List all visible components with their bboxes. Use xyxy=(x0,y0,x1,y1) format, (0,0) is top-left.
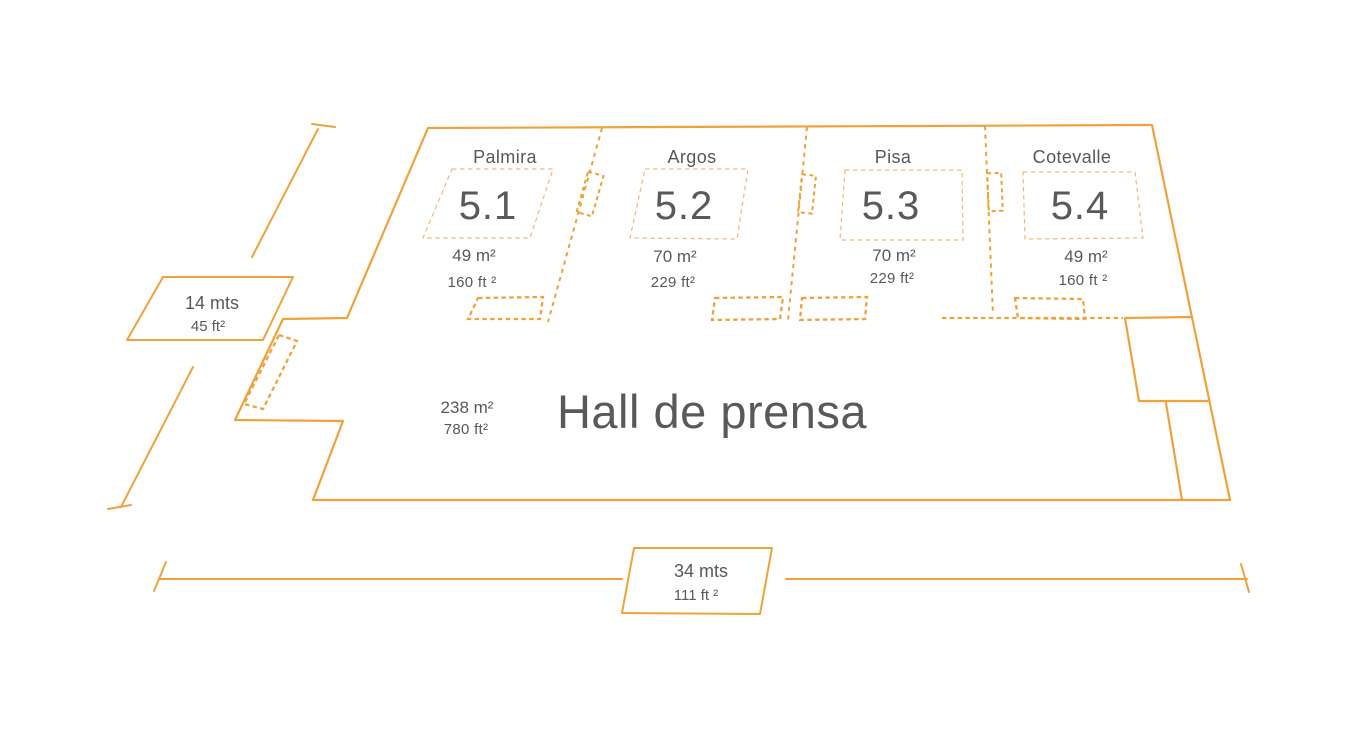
left-dimension: 14 mts 45 ft² xyxy=(108,124,335,509)
divider-wall-2 xyxy=(788,127,807,320)
bottom-dimension: 34 mts 111 ft ² xyxy=(154,548,1249,614)
divider-wall-1 xyxy=(548,128,602,322)
room-door xyxy=(468,297,543,319)
room-argos: Argos 5.2 70 m² 229 ft² xyxy=(630,147,783,320)
room-area-m2: 49 m² xyxy=(452,246,496,265)
right-lower-closet-left-wall xyxy=(1166,403,1182,500)
divider-3-doorway xyxy=(987,173,1003,212)
room-pisa: Pisa 5.3 70 m² 229 ft² xyxy=(800,147,963,320)
bottom-dimension-label-box xyxy=(622,548,772,614)
room-palmira: Palmira 5.1 49 m² 160 ft ² xyxy=(423,147,553,319)
hall-area-ft2: 780 ft² xyxy=(444,421,489,438)
building-outline xyxy=(235,125,1230,500)
room-number: 5.1 xyxy=(459,184,518,228)
hall-area-m2: 238 m² xyxy=(441,398,494,417)
bottom-dimension-metric: 34 mts xyxy=(674,561,728,581)
divider-1-doorway xyxy=(577,172,604,217)
room-number: 5.2 xyxy=(655,184,714,228)
room-number: 5.3 xyxy=(862,184,921,228)
floor-plan-svg: Palmira 5.1 49 m² 160 ft ² Argos 5.2 70 … xyxy=(0,0,1347,738)
outer-wall xyxy=(235,125,1230,500)
left-dimension-bottom-tick xyxy=(108,505,131,509)
hall-title: Hall de prensa xyxy=(557,385,867,438)
left-dimension-lower-line xyxy=(121,367,193,507)
room-door xyxy=(800,297,867,320)
room-area-ft2: 229 ft² xyxy=(651,274,696,291)
left-dimension-imperial: 45 ft² xyxy=(191,318,225,335)
bottom-dimension-imperial: 111 ft ² xyxy=(674,587,718,604)
room-area-ft2: 229 ft² xyxy=(870,270,915,287)
room-door xyxy=(712,297,783,320)
room-door xyxy=(1015,298,1085,319)
left-dimension-top-tick xyxy=(312,124,335,127)
room-area-ft2: 160 ft ² xyxy=(447,274,496,291)
divider-2-doorway xyxy=(798,174,816,213)
right-closet-top xyxy=(1125,317,1191,318)
floor-plan: Palmira 5.1 49 m² 160 ft ² Argos 5.2 70 … xyxy=(0,0,1347,738)
divider-wall-3 xyxy=(985,126,993,315)
hall: 238 m² 780 ft² Hall de prensa xyxy=(441,385,868,438)
room-name: Pisa xyxy=(875,147,912,167)
room-area-m2: 49 m² xyxy=(1064,247,1108,266)
room-area-ft2: 160 ft ² xyxy=(1058,272,1107,289)
right-closet-left-wall xyxy=(1125,318,1139,401)
left-dimension-upper-line xyxy=(252,129,318,257)
room-cotevalle: Cotevalle 5.4 49 m² 160 ft ² xyxy=(1015,147,1143,319)
room-name: Palmira xyxy=(473,147,537,167)
room-name: Argos xyxy=(667,147,716,167)
room-area-m2: 70 m² xyxy=(872,246,916,265)
room-name: Cotevalle xyxy=(1033,147,1112,167)
bottom-dimension-left-tick xyxy=(154,562,166,591)
room-number: 5.4 xyxy=(1051,184,1110,228)
room-area-m2: 70 m² xyxy=(653,247,697,266)
left-dimension-metric: 14 mts xyxy=(185,293,239,313)
